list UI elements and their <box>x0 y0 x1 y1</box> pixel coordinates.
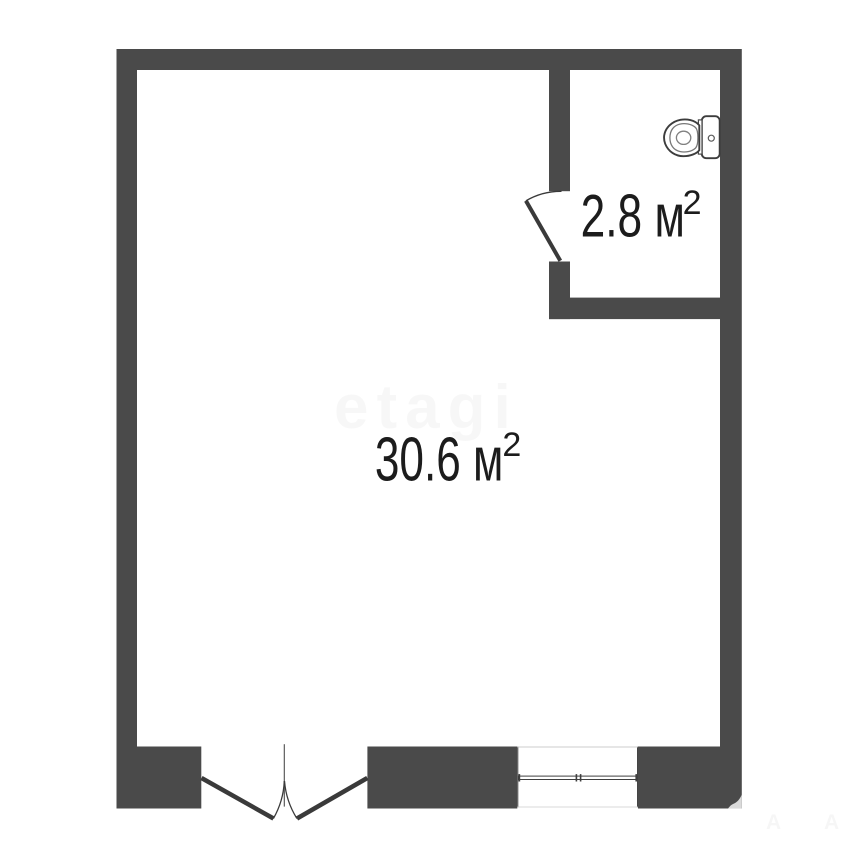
svg-text:2.8 м: 2.8 м <box>581 182 685 249</box>
svg-text:A: A <box>766 811 781 834</box>
svg-text:A: A <box>824 811 839 834</box>
svg-text:2: 2 <box>502 426 521 464</box>
svg-text:30.6 м: 30.6 м <box>375 426 504 495</box>
svg-text:2: 2 <box>683 184 702 222</box>
